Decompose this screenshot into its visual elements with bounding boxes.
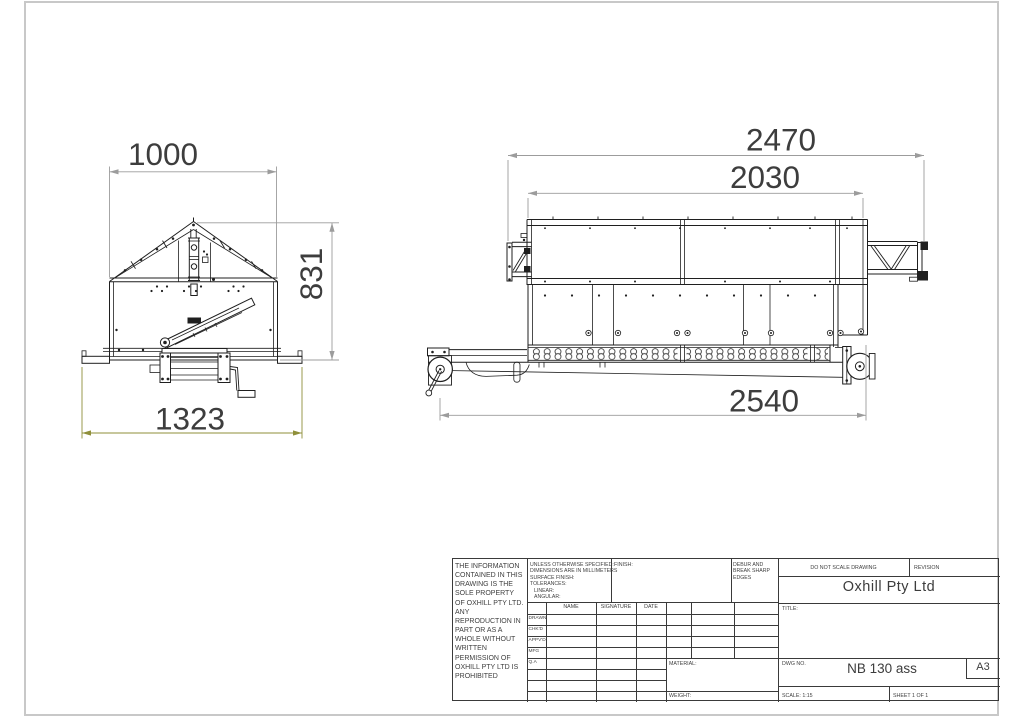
grid-line	[527, 647, 778, 648]
approval-row-mfg: MFG	[529, 649, 540, 656]
grid-line	[636, 602, 637, 702]
legal-notice: THE INFORMATION CONTAINED IN THIS DRAWIN…	[455, 562, 524, 681]
company-name: Oxhill Pty Ltd	[778, 579, 1000, 595]
crank-handle	[230, 367, 255, 398]
material-label: MATERIAL:	[669, 661, 697, 668]
dim-text-side-chassis: 2540	[729, 383, 799, 419]
title-label: TITLE:	[782, 606, 798, 613]
grid-line	[527, 625, 778, 626]
dwg-number: NB 130 ass	[798, 661, 966, 676]
dim-side-overall-length: 2470	[508, 122, 924, 242]
hopper-body	[527, 217, 868, 286]
weight-label: WEIGHT:	[669, 693, 691, 700]
approval-header-date: DATE	[636, 604, 666, 611]
grid-line	[527, 614, 778, 615]
front-mount-bracket	[507, 234, 532, 282]
approval-header-name: NAME	[546, 604, 596, 611]
title-block: THE INFORMATION CONTAINED IN THIS DRAWIN…	[452, 558, 999, 701]
brake-winch	[150, 298, 255, 397]
roller-chain-strip	[528, 345, 830, 363]
grid-line	[778, 576, 1000, 577]
dimensions: 1000 831 1323	[82, 122, 924, 439]
grid-line	[666, 602, 667, 702]
revision-label: REVISION	[914, 565, 939, 572]
dim-side-body-length: 2030	[528, 159, 863, 218]
grid-line	[778, 603, 1000, 604]
side-view	[426, 217, 928, 396]
front-view	[82, 218, 302, 398]
grid-line	[527, 636, 778, 637]
sheet-label: SHEET 1 OF 1	[893, 693, 928, 700]
rear-truss-bracket	[868, 242, 929, 282]
grid-line	[734, 602, 735, 658]
approval-row-drawn: DRAWN	[529, 616, 547, 623]
scale-label: SCALE: 1:15	[782, 693, 813, 700]
grid-line	[909, 559, 910, 576]
grid-line	[691, 602, 692, 658]
dim-text-front-base-width: 1323	[155, 401, 225, 437]
paper-size-badge: A3	[966, 661, 1000, 673]
dim-text-side-overall: 2470	[746, 122, 816, 158]
approval-row-qa: Q.A	[529, 660, 537, 667]
grid-line	[527, 602, 778, 603]
dim-front-base-width: 1323	[82, 367, 302, 439]
dim-text-front-height: 831	[293, 248, 329, 301]
rear-wheel	[835, 347, 875, 385]
front-jockey-wheel	[426, 356, 453, 396]
approval-row-chkd: CHK'D	[529, 627, 544, 634]
dim-front-width: 1000	[110, 136, 277, 277]
lower-side-panels	[528, 285, 868, 347]
dim-front-height: 831	[197, 223, 339, 360]
finish-label: FINISH:	[614, 562, 633, 569]
grid-line	[596, 602, 597, 702]
panel-bolts	[586, 329, 864, 336]
do-not-scale-note: DO NOT SCALE DRAWING	[778, 565, 909, 572]
winch-cable	[446, 371, 843, 378]
grid-line	[527, 658, 1000, 659]
grid-line	[966, 678, 1000, 679]
debur-note: DEBUR AND BREAK SHARP EDGES	[733, 562, 776, 583]
approval-row-appvd: APPV'D	[529, 638, 546, 645]
grid-line	[527, 691, 778, 692]
grid-line	[731, 559, 732, 602]
approval-header-signature: SIGNATURE	[596, 604, 636, 611]
dim-text-side-body: 2030	[730, 159, 800, 195]
grid-line	[889, 686, 890, 702]
drawing-sheet-page: 1000 831 1323	[0, 0, 1024, 724]
dim-text-front-width: 1000	[128, 136, 198, 172]
spec-line: ANGULAR:	[534, 594, 561, 601]
